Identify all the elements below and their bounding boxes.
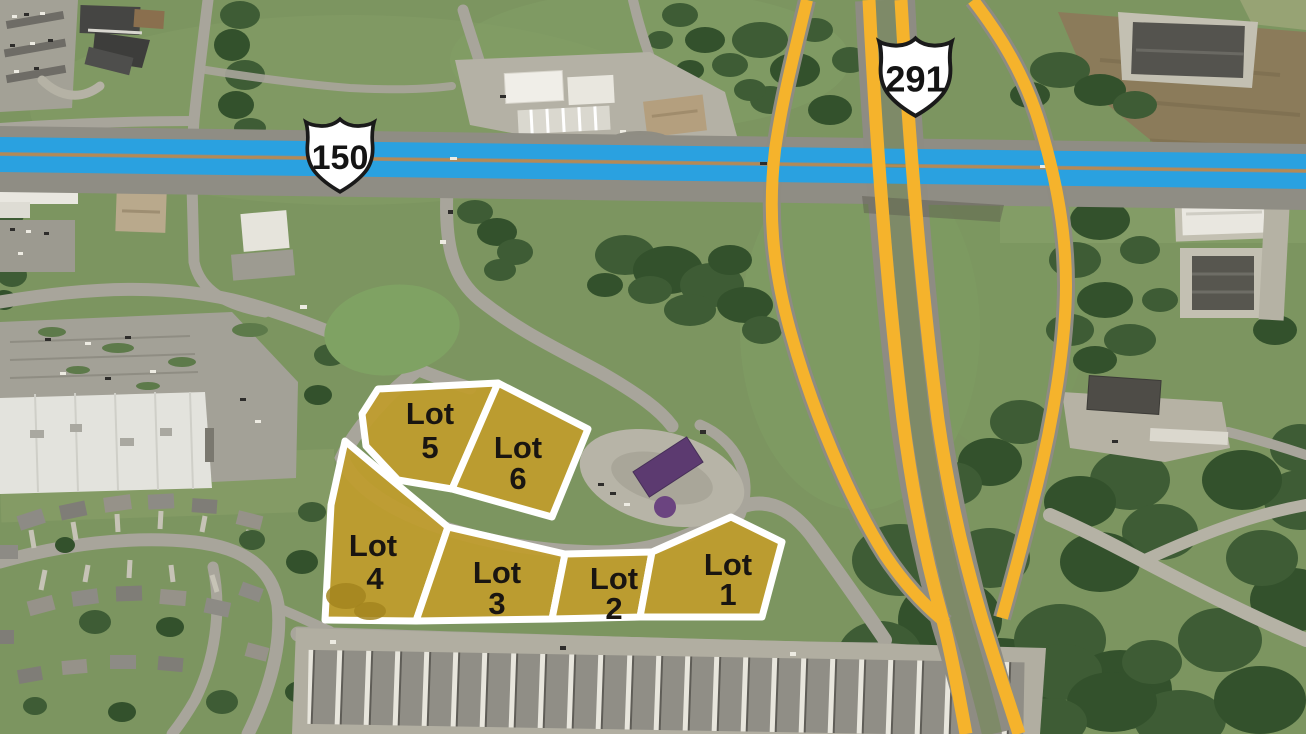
aerial-map: Lot 5 Lot 6 Lot 4 Lot 3 Lot 2 Lot 1 291 … [0,0,1306,734]
lot-3-number: 3 [488,586,505,621]
purple-canopy [654,496,676,518]
house-roof [157,656,183,672]
lot-5-label: Lot [406,396,454,431]
house-roof [116,586,143,602]
lot-3-label: Lot [473,555,521,590]
house-roof [110,655,136,669]
us-150-number: 150 [312,139,369,177]
house-roof [192,498,218,514]
store-roof [0,392,212,494]
satellite-base-imagery [0,0,1306,734]
lot-4-label: Lot [349,528,397,563]
house-roof [61,659,87,675]
lot-6-number: 6 [509,461,526,496]
lot-1-number: 1 [719,577,736,612]
house-roof [0,630,14,644]
lot-4-number: 4 [366,561,384,596]
retail-store [0,312,298,494]
lot-5-number: 5 [421,430,438,465]
dirt-patch [133,9,164,29]
house-roof [148,493,175,509]
house-roof [159,589,186,606]
lot-2-number: 2 [605,591,622,626]
aerial-map-canvas: Lot 5 Lot 6 Lot 4 Lot 3 Lot 2 Lot 1 291 … [0,0,1306,734]
house-roof [0,545,18,559]
lot-6-label: Lot [494,430,542,465]
us-291-number: 291 [885,58,946,99]
